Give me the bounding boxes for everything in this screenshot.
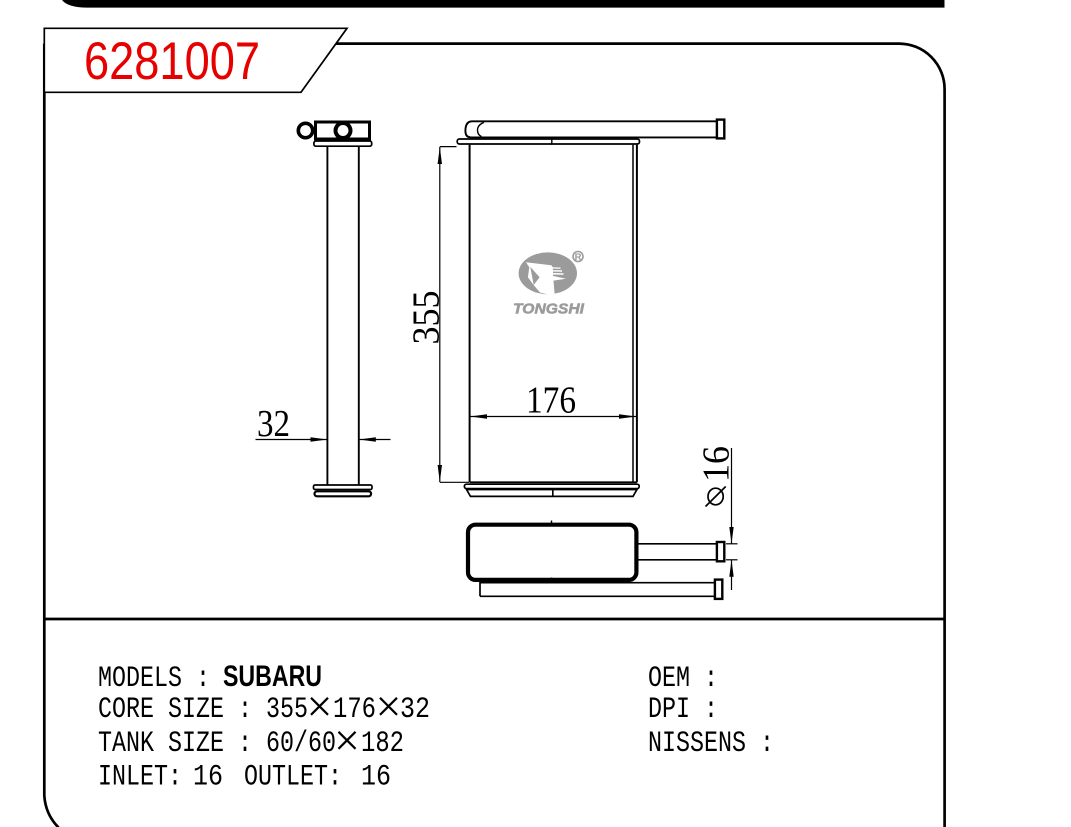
svg-text:SUBARU: SUBARU <box>223 660 322 693</box>
svg-text:CORE SIZE : 355: CORE SIZE : 355 <box>98 693 308 727</box>
svg-text:355: 355 <box>406 291 448 345</box>
svg-text:R: R <box>575 252 582 263</box>
svg-text:176: 176 <box>526 380 576 422</box>
svg-text:INLET:: INLET: <box>98 761 182 795</box>
svg-text:16: 16 <box>696 446 738 482</box>
svg-text:6281007: 6281007 <box>84 32 260 91</box>
svg-text:TANK SIZE : 60/60: TANK SIZE : 60/60 <box>98 727 336 761</box>
svg-text:176: 176 <box>333 693 376 727</box>
svg-text:32: 32 <box>400 693 430 727</box>
svg-text:MODELS :: MODELS : <box>98 662 210 696</box>
svg-text:32: 32 <box>257 403 290 445</box>
svg-text:16: 16 <box>193 761 223 795</box>
svg-text:16: 16 <box>361 761 391 795</box>
svg-text:TONGSHI: TONGSHI <box>513 302 585 318</box>
svg-text:182: 182 <box>361 727 404 761</box>
svg-text:DPI :: DPI : <box>648 693 718 727</box>
svg-text:NISSENS :: NISSENS : <box>648 727 774 761</box>
svg-text:OUTLET:: OUTLET: <box>244 761 342 795</box>
svg-text:OEM :: OEM : <box>648 662 718 696</box>
